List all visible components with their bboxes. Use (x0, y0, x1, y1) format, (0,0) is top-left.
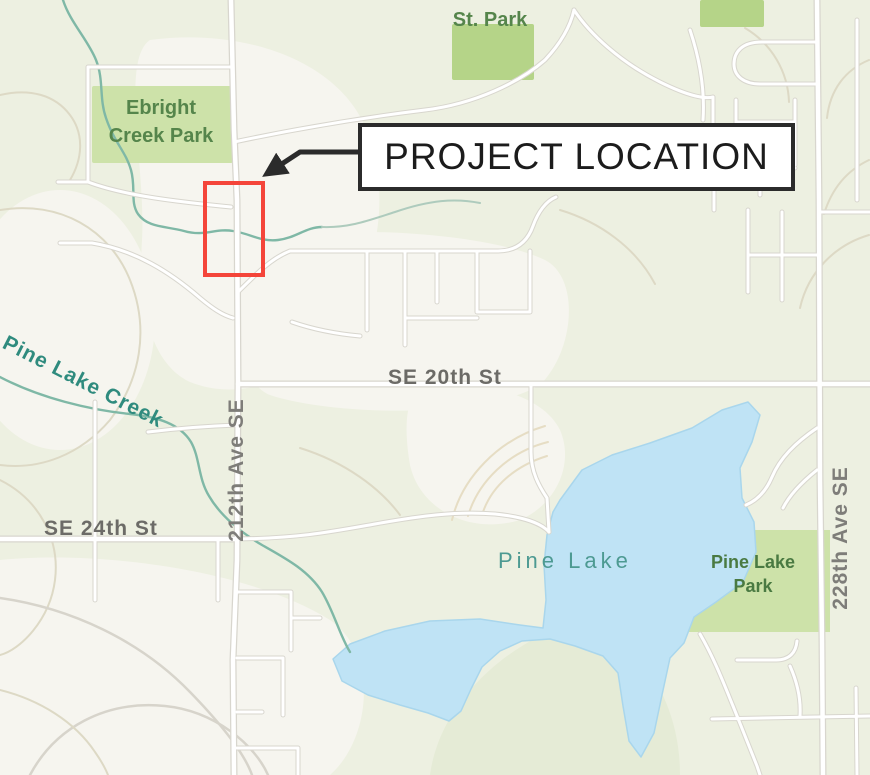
label-se-20th-st: SE 20th St (388, 366, 502, 390)
label-pine-lake-park: Pine Lake Park (692, 550, 814, 598)
label-se-24th-st: SE 24th St (44, 517, 158, 541)
label-228th-ave-se: 228th Ave SE (829, 438, 853, 638)
label-pine-lake: Pine Lake (498, 548, 632, 574)
project-location-callout: PROJECT LOCATION (358, 123, 795, 191)
top-right-park-area (700, 0, 764, 27)
label-ebright-line1: Ebright (88, 94, 234, 122)
topo-map: St. Park Ebright Creek Park Pine Lake Cr… (0, 0, 870, 775)
label-st-park: St. Park (420, 6, 560, 34)
project-location-arrow (255, 138, 375, 193)
label-212th-ave-se: 212th Ave SE (225, 370, 249, 570)
label-pine-lake-park-line2: Park (692, 574, 814, 598)
label-pine-lake-park-line1: Pine Lake (692, 550, 814, 574)
label-ebright-creek-park: Ebright Creek Park (88, 94, 234, 150)
label-ebright-line2: Creek Park (88, 122, 234, 150)
project-area-outline (203, 181, 265, 277)
